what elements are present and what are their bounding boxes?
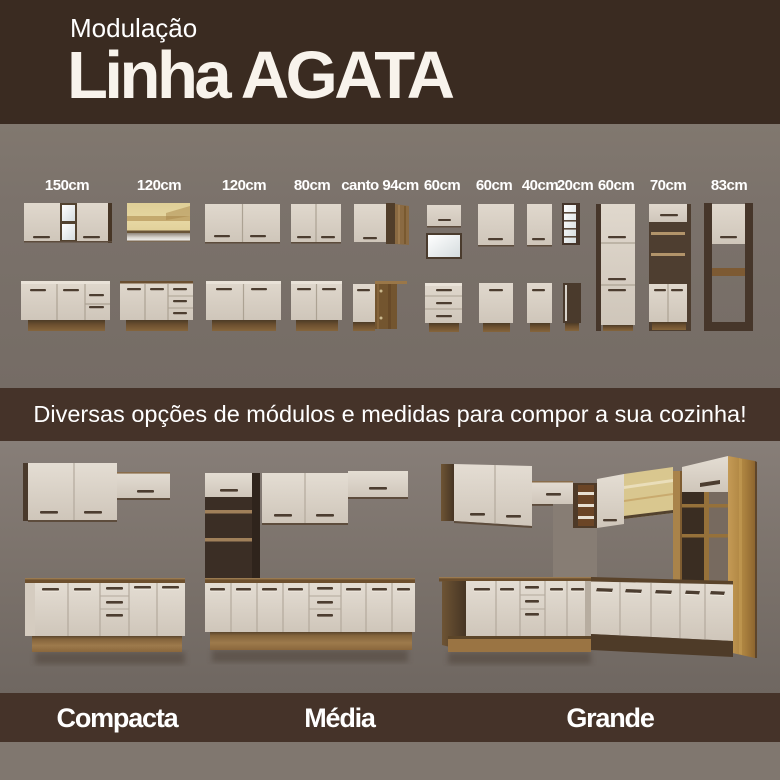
svg-text:60cm: 60cm [476, 177, 513, 194]
svg-text:70cm: 70cm [650, 177, 687, 194]
svg-text:83cm: 83cm [711, 177, 748, 194]
svg-text:canto 94cm: canto 94cm [341, 177, 419, 194]
svg-text:60cm: 60cm [424, 177, 461, 194]
svg-text:40cm: 40cm [522, 177, 559, 194]
svg-text:120cm: 120cm [222, 177, 266, 194]
svg-text:20cm: 20cm [557, 177, 594, 194]
svg-text:150cm: 150cm [45, 177, 89, 194]
svg-text:60cm: 60cm [598, 177, 635, 194]
svg-text:120cm: 120cm [137, 177, 181, 194]
svg-text:80cm: 80cm [294, 177, 331, 194]
